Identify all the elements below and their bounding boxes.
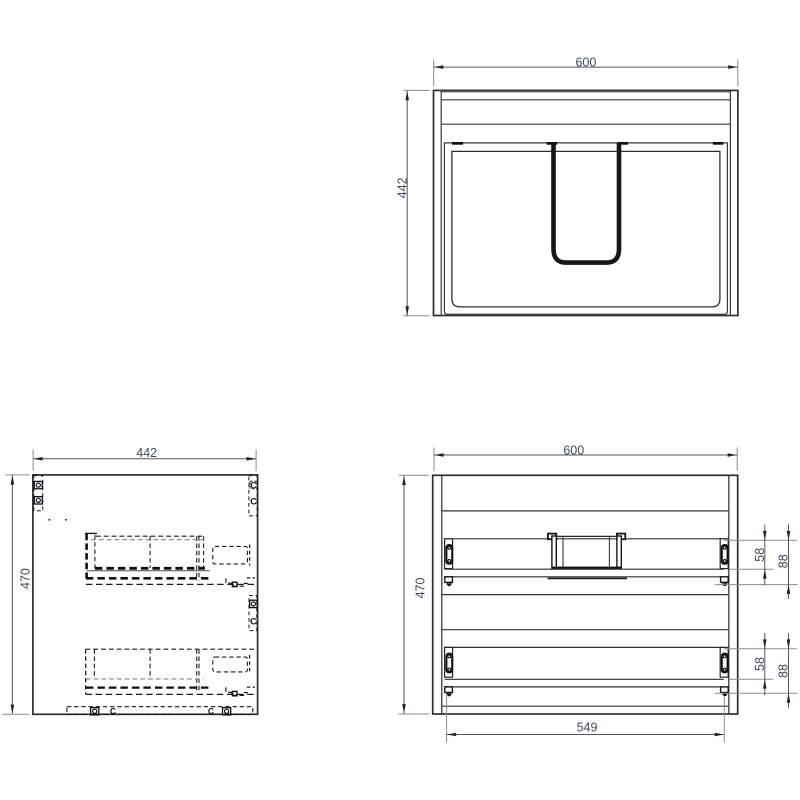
svg-text:C: C [250, 480, 257, 491]
svg-text:442: 442 [136, 446, 157, 460]
svg-text:600: 600 [575, 55, 596, 69]
svg-text:600: 600 [563, 443, 584, 457]
svg-text:58: 58 [753, 548, 767, 562]
svg-text:C: C [250, 616, 257, 627]
svg-text:442: 442 [395, 177, 409, 198]
svg-text:470: 470 [413, 578, 427, 599]
svg-text:C: C [110, 706, 116, 716]
svg-text:C: C [250, 497, 257, 508]
svg-text:88: 88 [777, 664, 791, 678]
svg-text:549: 549 [577, 721, 598, 735]
svg-text:58: 58 [753, 657, 767, 671]
svg-text:470: 470 [18, 568, 32, 589]
svg-text:88: 88 [777, 554, 791, 568]
svg-text:C: C [208, 706, 214, 716]
